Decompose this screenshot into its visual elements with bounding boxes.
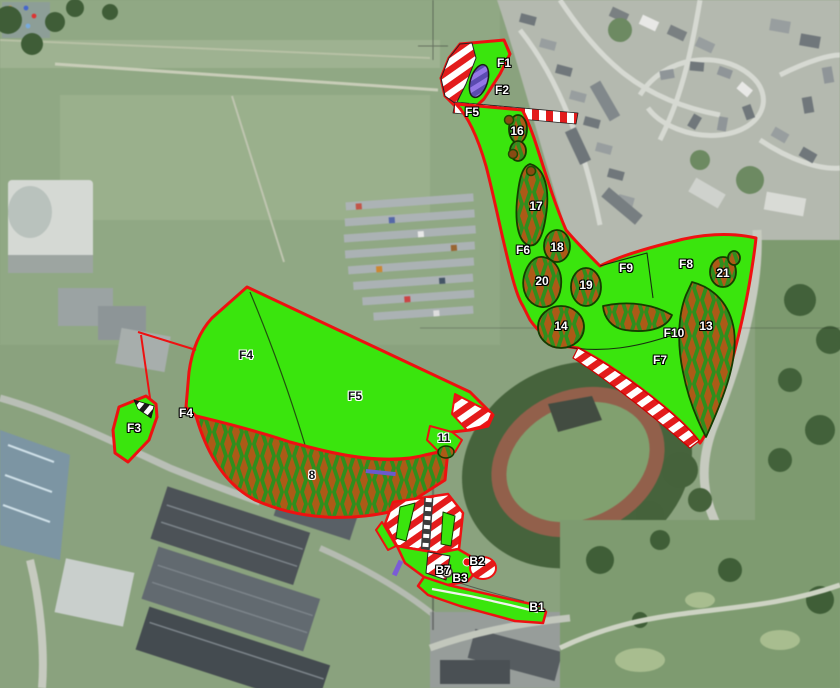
tree-group-21b (728, 251, 740, 265)
tree-group-18 (544, 230, 570, 262)
tree-group-14 (538, 306, 584, 348)
tree-dot-2 (509, 150, 518, 159)
leisure-centre (8, 180, 93, 273)
zone-b2-stripes (470, 557, 496, 579)
tree-group-19 (571, 268, 601, 306)
tree-dot-1 (505, 116, 514, 125)
railway-symbol (425, 498, 429, 552)
tree-group-17 (516, 164, 547, 245)
site-survey-map: F1F2F51617F6182019F9F82114F1013F7F4F5F4F… (0, 0, 840, 688)
tree-dot-3 (527, 167, 536, 176)
survey-dot-b2 (463, 558, 471, 566)
tree-group-20 (523, 257, 561, 307)
aerial-map-canvas (0, 0, 840, 688)
survey-circle-b3 (442, 567, 452, 577)
